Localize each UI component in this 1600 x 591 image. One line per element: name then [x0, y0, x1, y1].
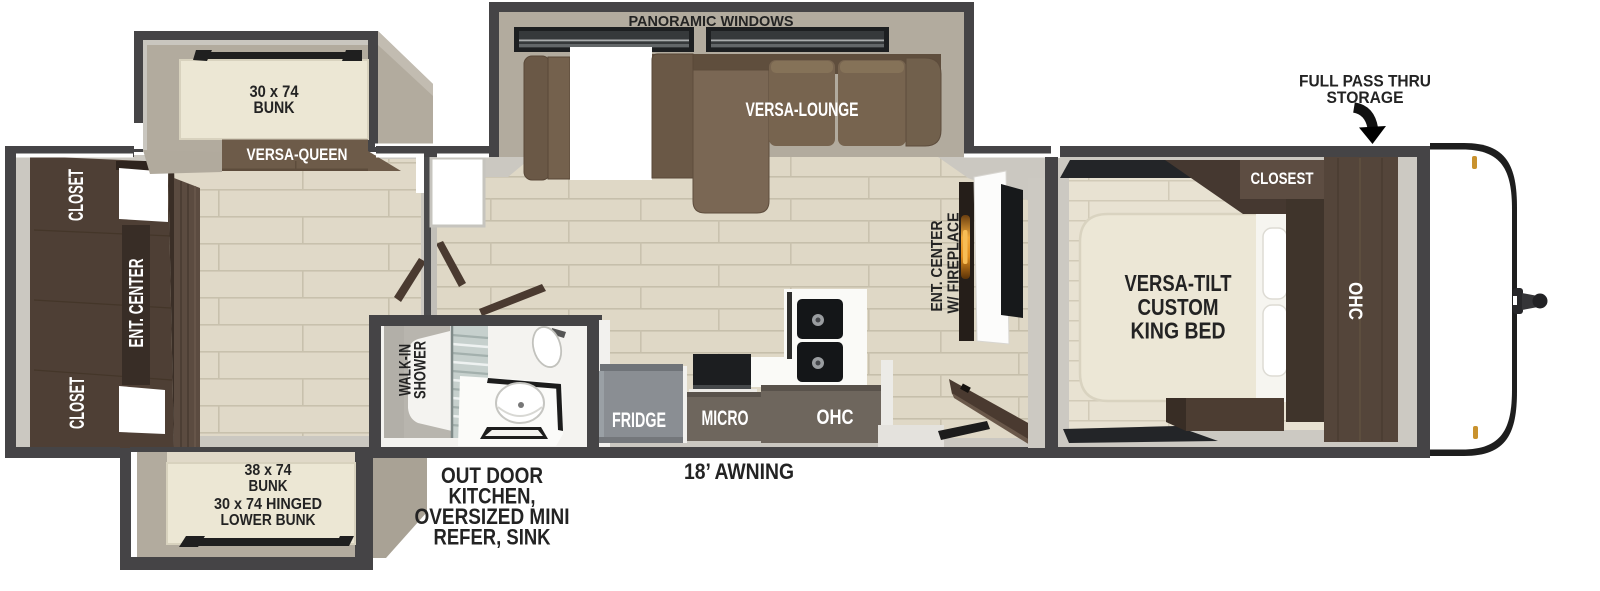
svg-text:CLOSET: CLOSET: [65, 169, 88, 221]
svg-text:LOWER BUNK: LOWER BUNK: [221, 512, 317, 529]
svg-text:30 x 74 HINGED: 30 x 74 HINGED: [214, 496, 322, 513]
svg-text:BUNK: BUNK: [254, 98, 296, 117]
svg-text:38 x 74: 38 x 74: [245, 462, 292, 479]
svg-text:SHOWER: SHOWER: [411, 341, 430, 399]
svg-text:CLOSET: CLOSET: [66, 377, 89, 429]
svg-text:VERSA-QUEEN: VERSA-QUEEN: [247, 146, 348, 164]
svg-text:W/ FIREPLACE: W/ FIREPLACE: [946, 212, 963, 313]
svg-text:OHC: OHC: [1344, 282, 1365, 320]
svg-text:VERSA-TILT: VERSA-TILT: [1125, 270, 1232, 296]
svg-text:CUSTOM: CUSTOM: [1138, 294, 1219, 320]
svg-text:FRIDGE: FRIDGE: [612, 409, 666, 432]
svg-text:18’ AWNING: 18’ AWNING: [684, 459, 794, 484]
svg-text:CLOSEST: CLOSEST: [1251, 169, 1314, 188]
svg-text:REFER, SINK: REFER, SINK: [434, 525, 552, 550]
svg-text:BUNK: BUNK: [249, 478, 289, 495]
svg-text:ENT. CENTER: ENT. CENTER: [929, 220, 946, 311]
svg-text:STORAGE: STORAGE: [1327, 89, 1404, 107]
svg-text:PANORAMIC WINDOWS: PANORAMIC WINDOWS: [629, 13, 794, 30]
svg-text:VERSA-LOUNGE: VERSA-LOUNGE: [746, 100, 859, 121]
svg-text:FULL PASS THRU: FULL PASS THRU: [1299, 73, 1431, 91]
svg-text:KING BED: KING BED: [1131, 318, 1226, 344]
svg-text:MICRO: MICRO: [702, 407, 749, 430]
svg-text:ENT. CENTER: ENT. CENTER: [126, 258, 148, 347]
svg-text:OHC: OHC: [817, 406, 854, 429]
